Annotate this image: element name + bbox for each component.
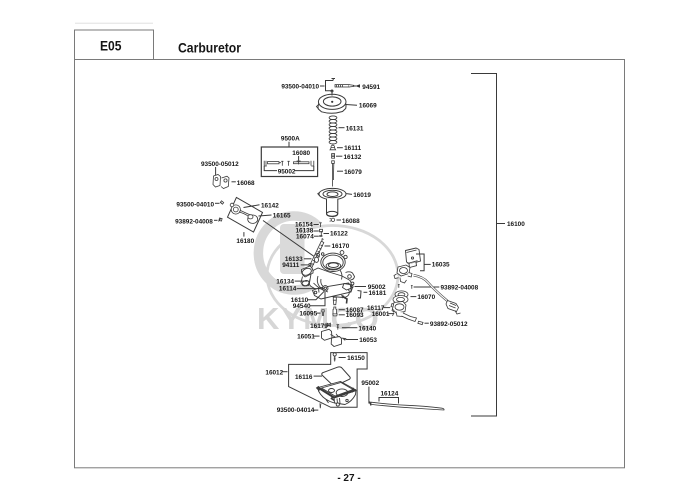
svg-text:16170: 16170 [332, 243, 350, 250]
svg-text:9500A: 9500A [281, 136, 300, 143]
svg-text:16131: 16131 [346, 125, 364, 132]
svg-text:93500-04010: 93500-04010 [176, 202, 214, 209]
svg-text:16114: 16114 [279, 286, 297, 293]
svg-text:16012: 16012 [265, 370, 283, 377]
svg-text:16069: 16069 [359, 102, 377, 109]
svg-text:16051: 16051 [297, 334, 315, 341]
svg-text:94591: 94591 [362, 84, 380, 91]
svg-text:16111: 16111 [344, 145, 362, 152]
svg-text:- 27 -: - 27 - [337, 473, 360, 484]
svg-text:16165: 16165 [273, 213, 291, 220]
svg-text:93500-05012: 93500-05012 [201, 161, 239, 168]
svg-text:16142: 16142 [261, 202, 279, 209]
svg-text:16053: 16053 [359, 337, 377, 344]
svg-text:93892-04008: 93892-04008 [175, 219, 213, 226]
svg-text:16068: 16068 [237, 180, 255, 187]
svg-text:16150: 16150 [347, 355, 365, 362]
svg-text:16124: 16124 [381, 391, 399, 398]
svg-text:16035: 16035 [432, 261, 450, 268]
svg-text:Carburetor: Carburetor [178, 40, 241, 56]
svg-text:16070: 16070 [417, 294, 435, 301]
svg-text:94111: 94111 [282, 262, 300, 269]
svg-text:16180: 16180 [236, 238, 254, 245]
svg-text:93500-04010: 93500-04010 [281, 84, 319, 91]
svg-text:16179: 16179 [310, 323, 328, 330]
svg-text:16001: 16001 [372, 311, 390, 318]
svg-text:16140: 16140 [358, 326, 376, 333]
svg-text:94540: 94540 [293, 303, 311, 310]
svg-text:16095: 16095 [299, 310, 317, 317]
svg-text:16079: 16079 [344, 169, 362, 176]
svg-text:16080: 16080 [292, 150, 310, 157]
svg-text:16116: 16116 [295, 374, 313, 381]
svg-text:95002: 95002 [278, 169, 296, 176]
svg-text:16122: 16122 [330, 231, 348, 238]
svg-text:16181: 16181 [369, 290, 387, 297]
svg-text:93892-04008: 93892-04008 [441, 285, 479, 292]
svg-text:95002: 95002 [361, 380, 379, 387]
svg-text:16074: 16074 [296, 234, 314, 241]
svg-text:16100: 16100 [507, 221, 525, 228]
svg-text:16134: 16134 [276, 278, 294, 285]
svg-text:16019: 16019 [353, 192, 371, 199]
svg-text:16088: 16088 [342, 218, 360, 225]
svg-text:93500-04014: 93500-04014 [277, 407, 315, 414]
svg-text:93892-05012: 93892-05012 [430, 321, 468, 328]
svg-text:16132: 16132 [344, 154, 362, 161]
svg-text:E05: E05 [100, 38, 122, 54]
svg-text:16093: 16093 [346, 312, 364, 319]
